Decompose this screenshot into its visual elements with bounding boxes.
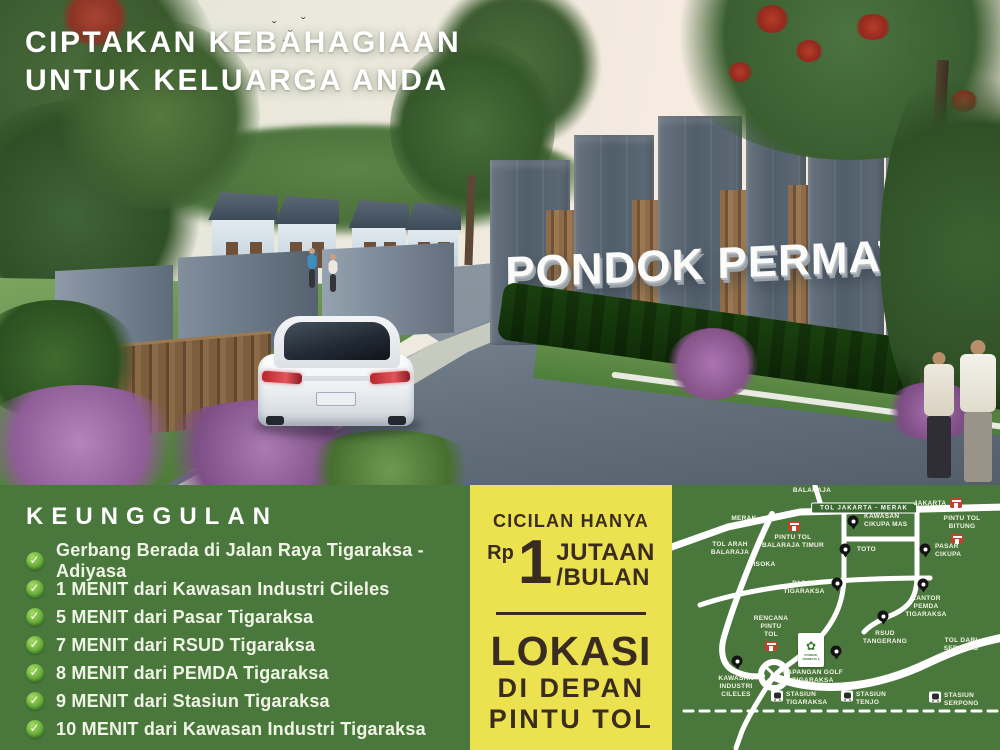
map-pin-icon xyxy=(918,579,929,590)
pedestrian xyxy=(327,254,339,294)
red-flowers xyxy=(728,62,752,82)
toll-gate-icon xyxy=(765,641,777,651)
location-map: TOL JAKARTA - MERAK ✿ PONDOK PERMATA 6 B… xyxy=(672,485,1000,750)
unit-line2: /BULAN xyxy=(556,565,650,590)
feature-text: 7 MENIT dari RSUD Tigaraksa xyxy=(56,635,315,656)
feature-text: 5 MENIT dari Pasar Tigaraksa xyxy=(56,607,313,628)
map-label-toto: TOTO xyxy=(857,546,876,554)
red-flowers xyxy=(795,40,823,62)
location-line1: LOKASI xyxy=(470,629,672,673)
check-icon xyxy=(26,580,44,598)
map-label-kawasan-cikupa-mas: KAWASAN CIKUPA MAS xyxy=(864,513,907,529)
map-pin-icon xyxy=(878,611,889,622)
poster: PONDOK PERMATA 6 xyxy=(0,0,1000,750)
car-rear-window xyxy=(284,322,390,360)
map-pin-icon xyxy=(732,656,743,667)
location-line3: PINTU TOL xyxy=(470,704,672,735)
features-title: KEUNGGULAN xyxy=(26,503,470,531)
price-panel: CICILAN HANYA Rp 1 JUTAAN /BULAN LOKASI … xyxy=(470,485,672,750)
map-label-pintu-tol-bitung: PINTU TOL BITUNG xyxy=(944,515,981,531)
feature-text: Gerbang Berada di Jalan Raya Tigaraksa -… xyxy=(56,540,470,582)
train-station-icon xyxy=(929,692,941,703)
headline-line2: UNTUK KELUARGA ANDA xyxy=(25,62,461,100)
divider-line xyxy=(496,612,646,615)
check-icon xyxy=(26,692,44,710)
estate-logo-text: PONDOK PERMATA 6 xyxy=(798,653,824,661)
map-pin-icon xyxy=(920,544,931,555)
check-icon xyxy=(26,664,44,682)
toll-road-badge: TOL JAKARTA - MERAK xyxy=(811,503,917,514)
feature-item: 8 MENIT dari PEMDA Tigaraksa xyxy=(26,659,470,687)
map-label-lapangan-golf-tigaraksa: LAPANGAN GOLF TIGARAKSA xyxy=(783,669,843,685)
map-label-merak: MERAK xyxy=(731,515,756,523)
red-flowers xyxy=(855,14,891,40)
map-label-kantor-pemda-tigaraksa: KANTOR PEMDA TIGARAKSA xyxy=(905,595,946,619)
map-label-kawasan-industri-cileles: KAWASAN INDUSTRI CILELES xyxy=(718,675,753,699)
train-station-icon xyxy=(841,691,853,702)
map-label-jakarta: JAKARTA xyxy=(914,500,947,508)
hero-scene: PONDOK PERMATA 6 xyxy=(0,0,1000,485)
features-list: Gerbang Berada di Jalan Raya Tigaraksa -… xyxy=(26,547,470,743)
map-label-pasar-tigaraksa: PASAR TIGARAKSA xyxy=(783,580,824,596)
map-pin-icon xyxy=(832,578,843,589)
map-label-rsud-tangerang: RSUD TANGERANG xyxy=(863,630,907,646)
estate-logo-box: ✿ PONDOK PERMATA 6 xyxy=(798,633,824,667)
map-label-stasiun-serpong: STASIUN SERPONG xyxy=(944,692,979,708)
white-car xyxy=(258,316,414,438)
check-icon xyxy=(26,552,44,570)
map-label-tol-arah-balaraja: TOL ARAH BALARAJA xyxy=(711,541,749,557)
estate-logo-icon: ✿ xyxy=(806,640,816,652)
feature-item: 9 MENIT dari Stasiun Tigaraksa xyxy=(26,687,470,715)
currency-label: Rp xyxy=(487,542,514,565)
installment-amount: Rp 1 JUTAAN /BULAN xyxy=(470,534,672,598)
feature-item: 7 MENIT dari RSUD Tigaraksa xyxy=(26,631,470,659)
headline: CIPTAKAN KEBAHAGIAAN UNTUK KELUARGA ANDA xyxy=(25,24,461,100)
check-icon xyxy=(26,636,44,654)
feature-item: Gerbang Berada di Jalan Raya Tigaraksa -… xyxy=(26,547,470,575)
feature-item: 5 MENIT dari Pasar Tigaraksa xyxy=(26,603,470,631)
feature-text: 10 MENIT dari Kawasan Industri Tigaraksa xyxy=(56,719,426,740)
toll-gate-icon xyxy=(788,521,800,531)
map-pin-icon xyxy=(831,646,842,657)
map-label-pasar-cikupa: PASAR CIKUPA xyxy=(935,543,961,559)
center-tree-trunk xyxy=(464,175,475,265)
check-icon xyxy=(26,608,44,626)
feature-text: 9 MENIT dari Stasiun Tigaraksa xyxy=(56,691,330,712)
pedestrian xyxy=(306,248,318,290)
headline-line1: CIPTAKAN KEBAHAGIAAN xyxy=(25,24,461,62)
map-label-tol-dari-serpong: TOL DARI SERPONG xyxy=(944,637,979,653)
train-station-icon xyxy=(771,691,783,702)
feature-text: 1 MENIT dari Kawasan Industri Cileles xyxy=(56,579,390,600)
map-label-stasiun-tenjo: STASIUN TENJO xyxy=(856,691,886,707)
check-icon xyxy=(26,720,44,738)
map-label-cisoka: CISOKA xyxy=(748,561,775,569)
pedestrian xyxy=(958,340,998,485)
purple-bush xyxy=(668,328,758,400)
features-section: KEUNGGULAN Gerbang Berada di Jalan Raya … xyxy=(0,485,470,750)
amount-value: 1 xyxy=(518,534,552,592)
location-line2: DI DEPAN xyxy=(470,673,672,704)
map-label-stasiun-tigaraksa: STASIUN TIGARAKSA xyxy=(786,691,827,707)
red-flowers xyxy=(755,5,789,33)
toll-gate-icon xyxy=(950,498,962,508)
license-plate xyxy=(316,392,356,406)
info-band: KEUNGGULAN Gerbang Berada di Jalan Raya … xyxy=(0,485,1000,750)
pedestrian xyxy=(922,352,956,482)
map-label-rencana-pintu-tol: RENCANA PINTU TOL xyxy=(754,615,789,639)
map-pin-icon xyxy=(848,516,859,527)
map-label-pintu-tol-balaraja-timur: PINTU TOL BALARAJA TIMUR xyxy=(762,534,824,550)
map-pin-icon xyxy=(840,544,851,555)
map-label-balaraja: BALARAJA xyxy=(793,487,831,495)
feature-item: 10 MENIT dari Kawasan Industri Tigaraksa xyxy=(26,715,470,743)
feature-text: 8 MENIT dari PEMDA Tigaraksa xyxy=(56,663,329,684)
unit-line1: JUTAAN xyxy=(556,540,655,565)
bird-icon: ⌄ xyxy=(299,14,307,22)
installment-label: CICILAN HANYA xyxy=(470,511,672,532)
